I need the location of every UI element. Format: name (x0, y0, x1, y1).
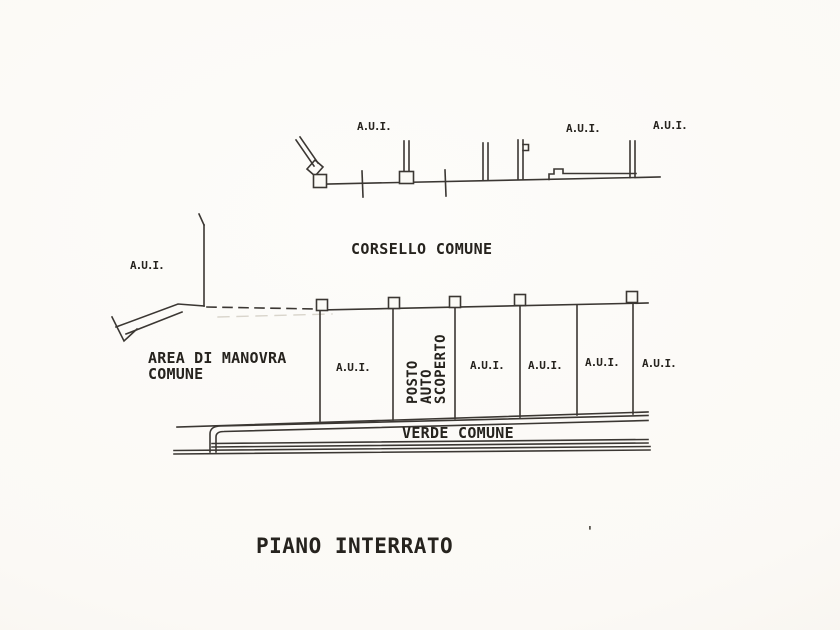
pillar-3 (450, 297, 461, 308)
label-stall-aui-1: A.U.I. (336, 362, 370, 374)
wall-stub-c-notch (523, 145, 529, 151)
tick-mark-2 (445, 170, 446, 196)
pillar-2 (389, 298, 400, 309)
upper-building-outline (296, 137, 660, 197)
label-posto-auto-scoperto: POSTO AUTO SCOPERTO (406, 332, 448, 404)
label-area-di-manovra-line2: COMUNE (148, 365, 203, 383)
label-aui-upper-1: A.U.I. (357, 121, 391, 133)
stalls-top-line (318, 303, 648, 310)
pillar-4 (515, 295, 526, 306)
page-title: PIANO INTERRATO (256, 535, 453, 558)
label-area-di-manovra: AREA DI MANOVRA COMUNE (148, 350, 318, 382)
label-aui-upper-2: A.U.I. (566, 123, 600, 135)
boundary-lines (199, 214, 316, 309)
tick-mark-1 (362, 171, 363, 197)
label-posto-line1: POSTO (406, 332, 420, 404)
label-stall-aui-5: A.U.I. (642, 358, 676, 370)
label-posto-line2: AUTO (420, 332, 434, 404)
label-posto-line3: SCOPERTO (434, 332, 448, 404)
ramp-upper-edge (116, 304, 204, 327)
corner-pillar (314, 175, 327, 188)
tilted-pillar (307, 160, 323, 176)
scanned-floor-plan: A.U.I. A.U.I. A.U.I. CORSELLO COMUNE A.U… (0, 0, 840, 630)
boundary-dashed-line (207, 307, 316, 309)
boundary-hook (199, 214, 204, 225)
label-aui-upper-3: A.U.I. (653, 120, 687, 132)
label-aui-left: A.U.I. (130, 260, 164, 272)
scan-artifact-line (218, 314, 332, 317)
wall-stub-a-base (400, 172, 414, 184)
label-verde-comune: VERDE COMUNE (402, 425, 514, 442)
pillar-1 (317, 300, 328, 311)
upper-wall-line (327, 177, 660, 184)
label-stall-aui-2: A.U.I. (470, 360, 504, 372)
pillar-5 (627, 292, 638, 303)
label-stall-aui-4: A.U.I. (585, 357, 619, 369)
label-stall-aui-3: A.U.I. (528, 360, 562, 372)
stray-mark: ' (586, 526, 594, 540)
maneuver-ramp (112, 304, 204, 341)
label-corsello-comune: CORSELLO COMUNE (351, 241, 492, 258)
